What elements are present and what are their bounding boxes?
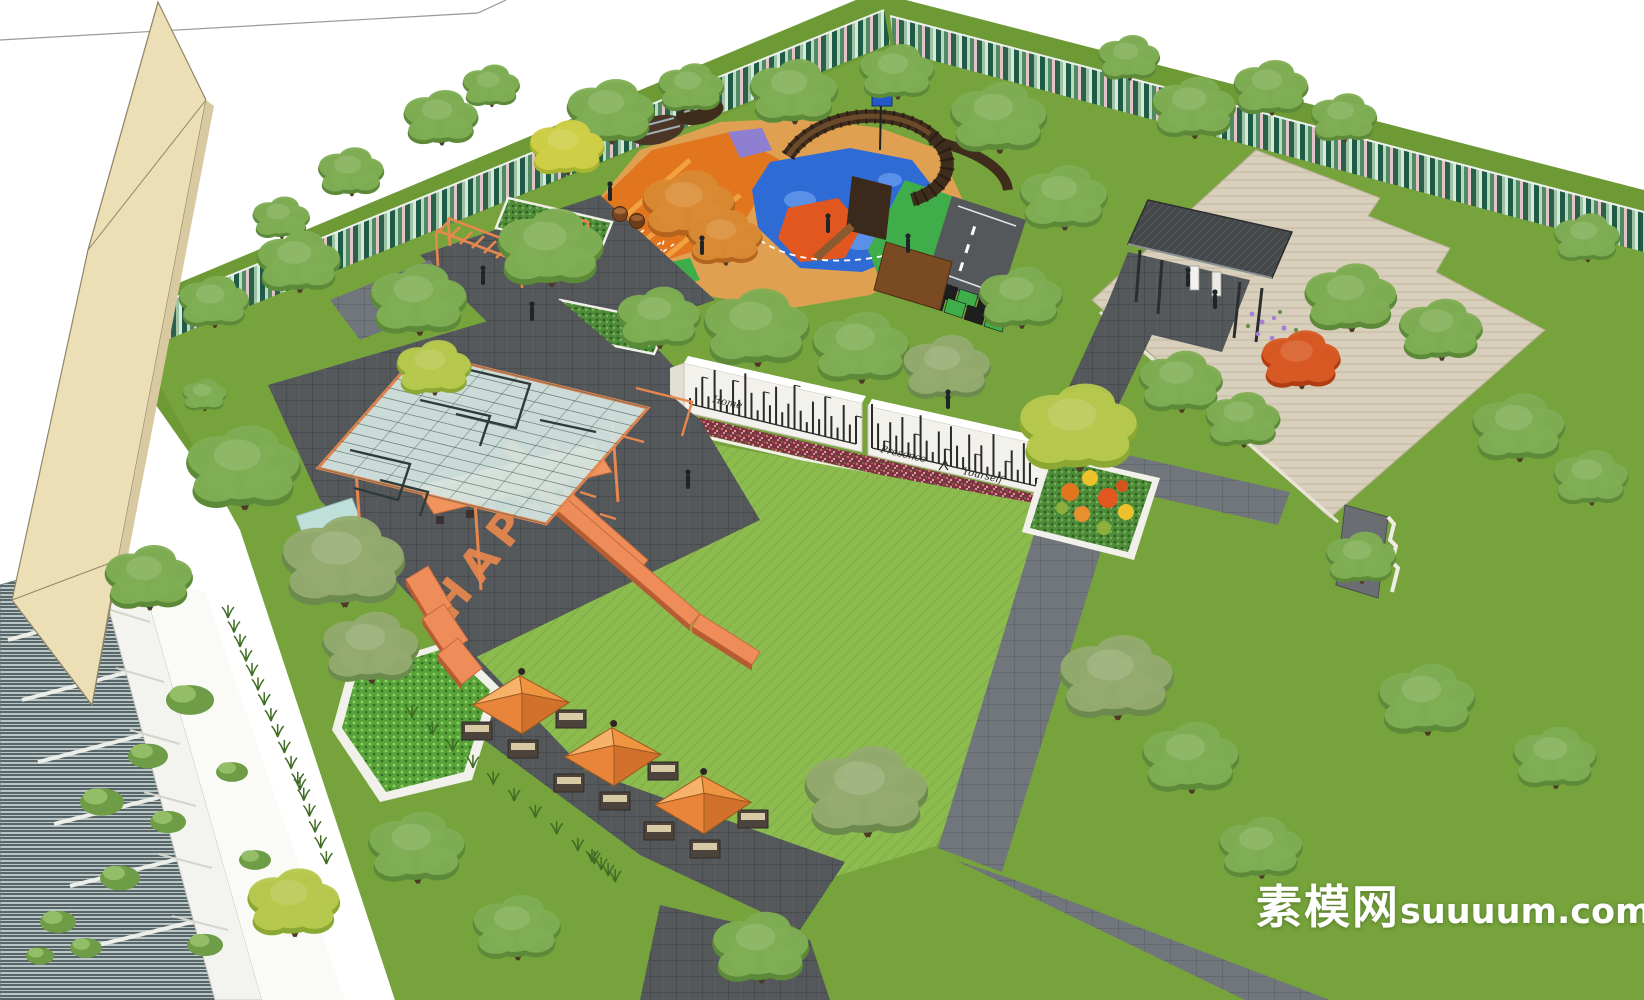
shrub <box>100 866 140 891</box>
render-canvas: HomePresenceYourself HAPPY <box>0 0 1644 1000</box>
person-figure <box>480 265 485 283</box>
person-figure <box>699 235 704 253</box>
shrub <box>150 811 186 833</box>
shrub <box>70 938 102 958</box>
shrub <box>239 850 271 870</box>
watermark-site-name: 素模网 <box>1256 880 1400 934</box>
shrub <box>40 911 76 933</box>
person-figure <box>945 389 950 407</box>
person-figure <box>685 469 690 487</box>
person-figure <box>529 301 534 319</box>
watermark: 素模网suuuum.com <box>1256 884 1644 930</box>
shrub <box>187 934 223 956</box>
shrub <box>80 788 124 815</box>
parasol-finial <box>610 720 617 727</box>
shrub <box>216 762 248 782</box>
person-figure <box>905 233 910 251</box>
shrub <box>128 744 168 769</box>
pavilion-sign <box>1190 266 1199 290</box>
person-figure <box>1185 267 1190 285</box>
parasol-finial <box>518 668 525 675</box>
scene-svg: HomePresenceYourself HAPPY <box>0 0 1644 1000</box>
shrub <box>26 947 54 964</box>
parasol-finial <box>700 768 707 775</box>
watermark-domain: suuuum.com <box>1400 892 1644 932</box>
person-figure <box>1212 289 1217 307</box>
shrub <box>166 685 214 715</box>
person-figure <box>825 213 830 231</box>
person-figure <box>607 181 612 199</box>
